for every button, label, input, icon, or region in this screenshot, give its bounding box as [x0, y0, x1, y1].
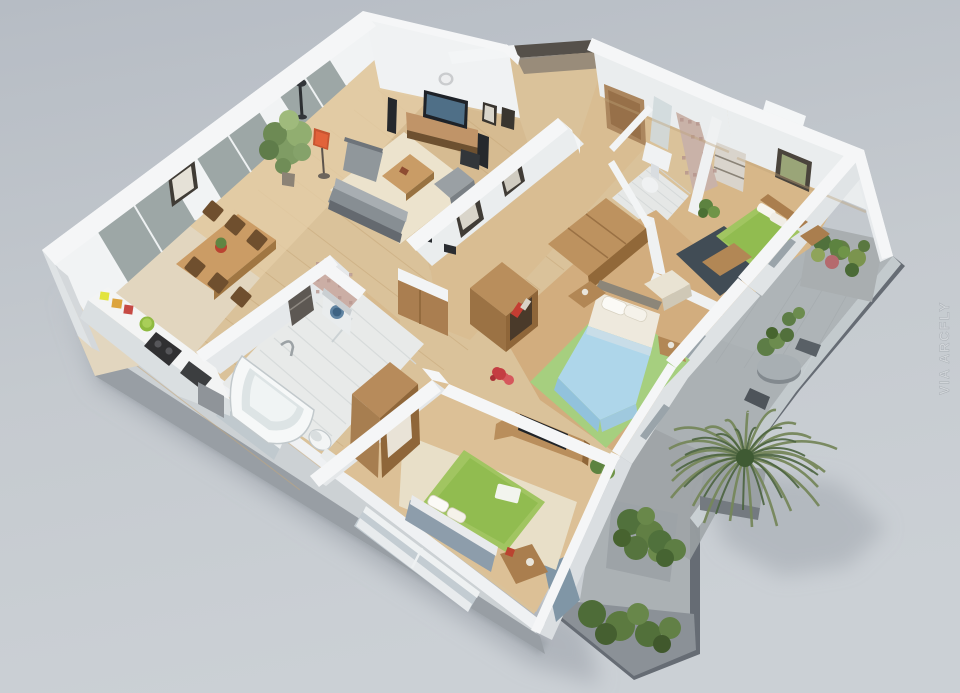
svg-text:VIA ARCFLY: VIA ARCFLY: [937, 301, 952, 395]
